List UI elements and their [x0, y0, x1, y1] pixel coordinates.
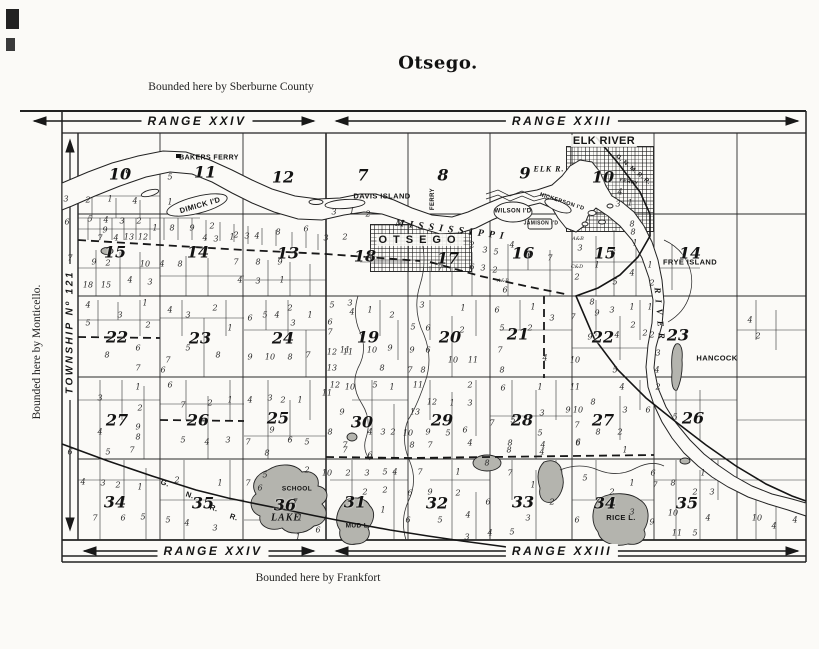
pond-sec15 [101, 248, 113, 255]
lake-sec33 [538, 461, 563, 503]
plat-map-page: Otsego. Bounded here by Sberburne County… [0, 0, 819, 649]
lakes [101, 248, 690, 546]
railroads [62, 137, 806, 548]
bakers-ferry-mark [176, 154, 181, 158]
pond-sec30 [347, 433, 357, 441]
map-canvas [0, 0, 819, 649]
section-grid [78, 133, 806, 540]
range-arrows [34, 117, 798, 555]
school-lake [251, 465, 327, 533]
hancock-slough [672, 344, 683, 391]
lot-lines [78, 196, 806, 540]
pond-sec35 [680, 458, 690, 464]
rice-lake [593, 494, 648, 546]
roads [78, 240, 654, 458]
